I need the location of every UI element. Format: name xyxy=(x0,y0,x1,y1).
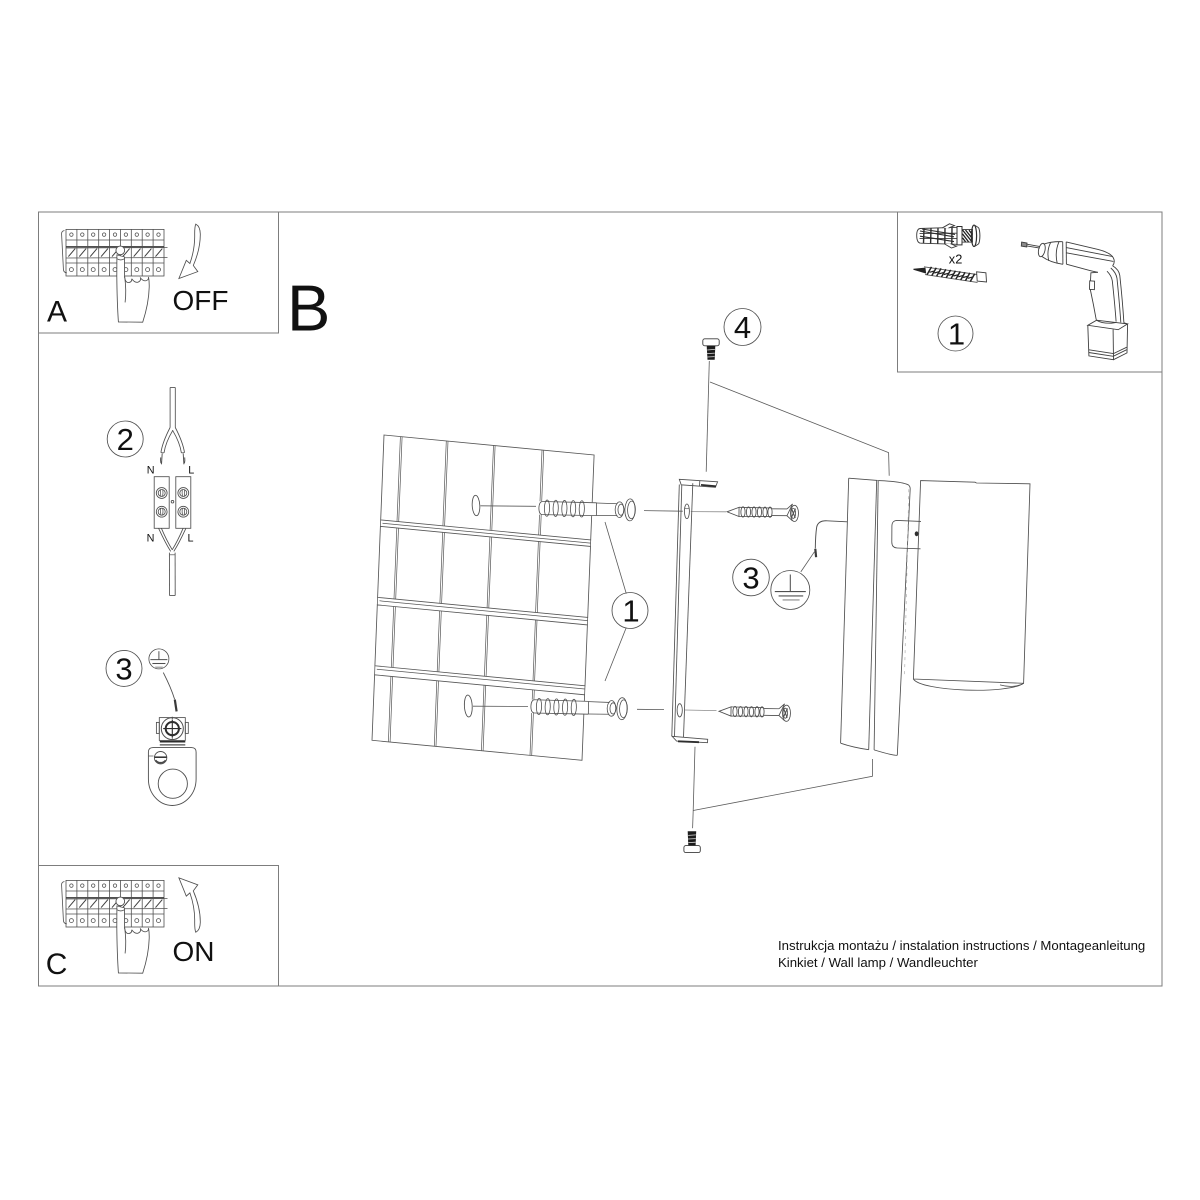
svg-text:1: 1 xyxy=(948,317,965,352)
svg-text:C: C xyxy=(46,948,68,981)
svg-text:3: 3 xyxy=(742,561,759,596)
svg-text:N: N xyxy=(147,464,155,476)
svg-text:2: 2 xyxy=(117,422,134,457)
svg-text:Kinkiet / Wall lamp / Wandleuc: Kinkiet / Wall lamp / Wandleuchter xyxy=(778,955,978,970)
svg-text:3: 3 xyxy=(115,652,132,687)
svg-text:x2: x2 xyxy=(949,251,963,266)
svg-text:A: A xyxy=(47,295,67,328)
svg-text:1: 1 xyxy=(622,594,639,629)
svg-text:L: L xyxy=(188,464,194,476)
svg-text:N: N xyxy=(147,532,155,544)
svg-text:OFF: OFF xyxy=(173,285,229,316)
svg-text:B: B xyxy=(287,272,330,345)
svg-text:L: L xyxy=(188,532,194,544)
svg-text:4: 4 xyxy=(734,310,751,345)
svg-text:Instrukcja montażu / instalati: Instrukcja montażu / instalation instruc… xyxy=(778,938,1145,953)
svg-text:ON: ON xyxy=(173,936,215,967)
